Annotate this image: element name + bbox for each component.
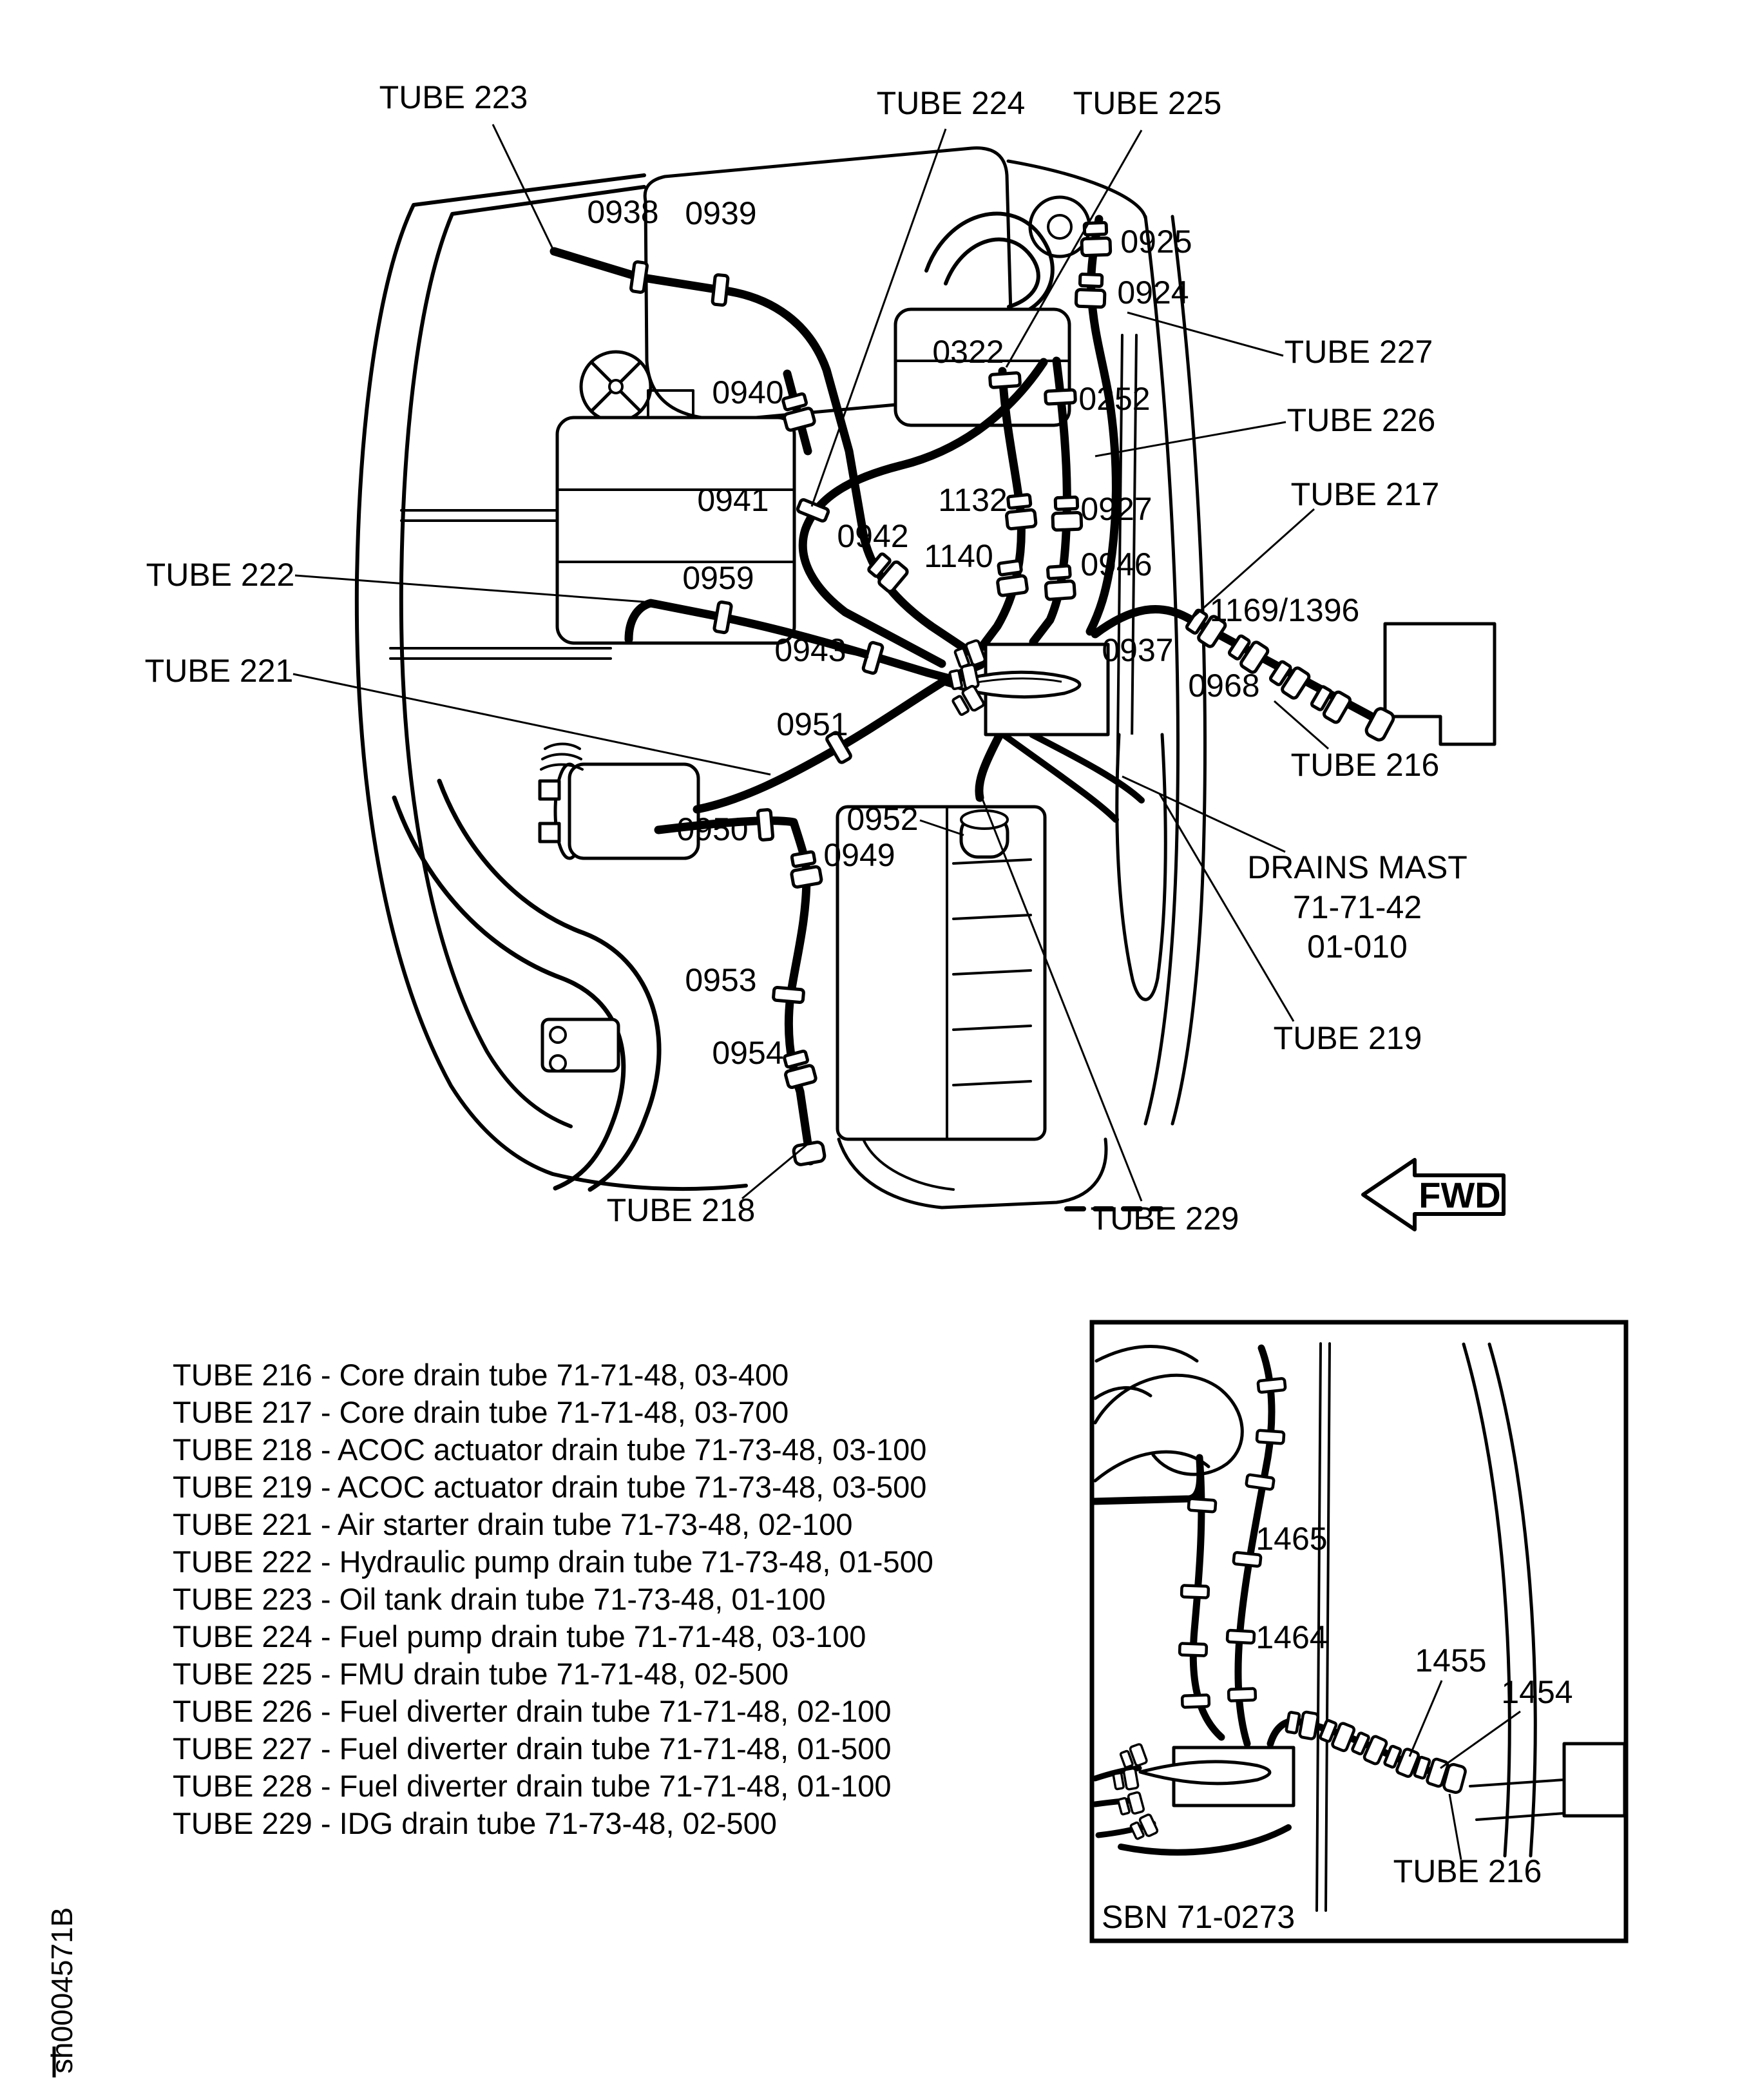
label-0937: 0937 bbox=[1102, 632, 1173, 668]
label-tube223: TUBE 223 bbox=[379, 79, 528, 115]
legend-block: TUBE 216 - Core drain tube 71-71-48, 03-… bbox=[173, 1358, 933, 1840]
label-tube227: TUBE 227 bbox=[1285, 334, 1433, 370]
label-1140: 1140 bbox=[924, 538, 993, 574]
legend-line-7: TUBE 223 - Oil tank drain tube 71-73-48,… bbox=[173, 1582, 826, 1616]
duct-bellows bbox=[541, 744, 582, 770]
label-0927: 0927 bbox=[1080, 491, 1152, 527]
clamp-0322 bbox=[990, 372, 1020, 387]
label-tube219: TUBE 219 bbox=[1274, 1020, 1422, 1056]
inset-clamp-a2 bbox=[1257, 1431, 1285, 1444]
label-0322: 0322 bbox=[932, 334, 1004, 370]
bracket-bolt-1 bbox=[550, 1027, 566, 1043]
label-0925: 0925 bbox=[1120, 224, 1192, 260]
inset-label-tube216: TUBE 216 bbox=[1393, 1853, 1542, 1889]
fitting-1132 bbox=[1004, 494, 1036, 529]
legend-line-6: TUBE 222 - Hydraulic pump drain tube 71-… bbox=[173, 1545, 933, 1579]
label-tube224: TUBE 224 bbox=[877, 85, 1026, 121]
inset-clamp-a1 bbox=[1257, 1378, 1285, 1392]
inset-detail: 1465 1464 1455 1454 TUBE 216 SBN 71-0273 bbox=[1092, 1322, 1626, 1941]
inset-clamp-b4 bbox=[1182, 1695, 1209, 1707]
inset-border bbox=[1092, 1322, 1626, 1941]
label-0959: 0959 bbox=[682, 560, 754, 596]
label-0953: 0953 bbox=[685, 962, 756, 998]
leader-tube219 bbox=[1160, 794, 1294, 1021]
fitting-0927 bbox=[1052, 497, 1082, 530]
label-0954: 0954 bbox=[712, 1035, 783, 1071]
clamp-0252 bbox=[1046, 390, 1076, 404]
inset-pylon-block bbox=[1564, 1744, 1625, 1816]
label-0252: 0252 bbox=[1078, 381, 1150, 417]
label-tube216: TUBE 216 bbox=[1291, 747, 1440, 783]
bottom-cowl bbox=[839, 1139, 1106, 1208]
label-tube221: TUBE 221 bbox=[145, 653, 294, 689]
inset-label-1455: 1455 bbox=[1415, 1642, 1486, 1679]
legend-line-13: TUBE 229 - IDG drain tube 71-73-48, 02-5… bbox=[173, 1806, 777, 1840]
label-0949: 0949 bbox=[823, 837, 895, 873]
pylon-block bbox=[1385, 624, 1495, 744]
inset-clamp-a6 bbox=[1229, 1688, 1256, 1700]
label-0940: 0940 bbox=[712, 374, 783, 410]
legend-line-2: TUBE 217 - Core drain tube 71-71-48, 03-… bbox=[173, 1395, 789, 1429]
label-drains-mast-2: 71-71-42 bbox=[1293, 889, 1422, 925]
label-drains-mast-3: 01-010 bbox=[1307, 929, 1408, 965]
legend-line-4: TUBE 219 - ACOC actuator drain tube 71-7… bbox=[173, 1470, 926, 1504]
inset-clamp-a3 bbox=[1246, 1474, 1274, 1490]
label-0968: 0968 bbox=[1188, 668, 1259, 704]
legend-line-3: TUBE 218 - ACOC actuator drain tube 71-7… bbox=[173, 1432, 926, 1467]
inset-clamp-a5 bbox=[1227, 1630, 1254, 1643]
inset-label-1464: 1464 bbox=[1256, 1619, 1327, 1655]
sheet-code-text: sh0004571B bbox=[45, 1907, 79, 2074]
inset-clamp-b2 bbox=[1181, 1585, 1209, 1597]
bracket-bolt-2 bbox=[550, 1055, 566, 1071]
label-drains-mast-1: DRAINS MAST bbox=[1247, 849, 1468, 885]
boss-0952-top bbox=[961, 811, 1008, 829]
fitting-0924 bbox=[1076, 274, 1105, 307]
tube-229-stub-path bbox=[979, 735, 1000, 798]
fwd-arrow: FWD bbox=[1363, 1160, 1504, 1229]
legend-line-5: TUBE 221 - Air starter drain tube 71-73-… bbox=[173, 1507, 852, 1541]
inset-clamp-b1 bbox=[1189, 1499, 1216, 1512]
legend-line-9: TUBE 225 - FMU drain tube 71-71-48, 02-5… bbox=[173, 1657, 789, 1691]
legend-line-11: TUBE 227 - Fuel diverter drain tube 71-7… bbox=[173, 1731, 892, 1766]
leader-tube227 bbox=[1127, 313, 1283, 356]
label-0946: 0946 bbox=[1080, 546, 1152, 583]
label-tube226: TUBE 226 bbox=[1287, 402, 1436, 438]
clamp-0950 bbox=[758, 809, 773, 840]
label-tube225: TUBE 225 bbox=[1073, 85, 1222, 121]
legend-line-12: TUBE 228 - Fuel diverter drain tube 71-7… bbox=[173, 1769, 892, 1803]
bottom-cowl-inner bbox=[863, 1139, 953, 1190]
clamp-0939 bbox=[712, 275, 729, 305]
label-0952: 0952 bbox=[846, 801, 918, 837]
legend-line-1: TUBE 216 - Core drain tube 71-71-48, 03-… bbox=[173, 1358, 789, 1392]
inset-caption: SBN 71-0273 bbox=[1102, 1899, 1295, 1935]
leader-tube218 bbox=[742, 1142, 810, 1199]
label-0951: 0951 bbox=[776, 706, 848, 742]
manual-page: TUBE 223 TUBE 224 TUBE 225 0938 0939 092… bbox=[0, 0, 1740, 2100]
drains-mast-fairing bbox=[1117, 735, 1165, 999]
sheet-code-block: sh0004571B bbox=[45, 1907, 79, 2077]
label-0939: 0939 bbox=[685, 195, 756, 231]
fan-drive-hub bbox=[609, 380, 622, 393]
label-tube229: TUBE 229 bbox=[1091, 1200, 1239, 1237]
label-1132: 1132 bbox=[938, 482, 1008, 518]
inset-label-1465: 1465 bbox=[1256, 1521, 1327, 1557]
label-tube218: TUBE 218 bbox=[607, 1192, 756, 1228]
label-0941: 0941 bbox=[697, 482, 769, 518]
clamp-0938 bbox=[631, 262, 647, 293]
label-0942: 0942 bbox=[837, 518, 908, 554]
oil-filler-hub bbox=[1048, 215, 1071, 238]
clamp-0943 bbox=[863, 642, 883, 674]
label-tube217: TUBE 217 bbox=[1291, 476, 1440, 512]
label-tube222: TUBE 222 bbox=[146, 557, 295, 593]
label-0938: 0938 bbox=[587, 194, 658, 230]
label-0924: 0924 bbox=[1117, 275, 1189, 311]
fitting-0949 bbox=[789, 851, 822, 888]
label-0950: 0950 bbox=[676, 811, 748, 847]
legend-line-10: TUBE 226 - Fuel diverter drain tube 71-7… bbox=[173, 1694, 892, 1728]
engine-drain-tubes-figure: TUBE 223 TUBE 224 TUBE 225 0938 0939 092… bbox=[0, 0, 1740, 2100]
inset-label-1454: 1454 bbox=[1501, 1674, 1573, 1710]
clamp-0953 bbox=[773, 987, 804, 1003]
label-0943: 0943 bbox=[774, 632, 846, 668]
leader-tube226 bbox=[1095, 422, 1286, 456]
label-1169-1396: 1169/1396 bbox=[1210, 592, 1360, 628]
fitting-0946 bbox=[1044, 566, 1075, 600]
fwd-arrow-text: FWD bbox=[1419, 1175, 1501, 1215]
legend-line-8: TUBE 224 - Fuel pump drain tube 71-71-48… bbox=[173, 1619, 866, 1653]
fitting-0954 bbox=[781, 1050, 816, 1088]
inset-clamp-b3 bbox=[1180, 1643, 1207, 1655]
